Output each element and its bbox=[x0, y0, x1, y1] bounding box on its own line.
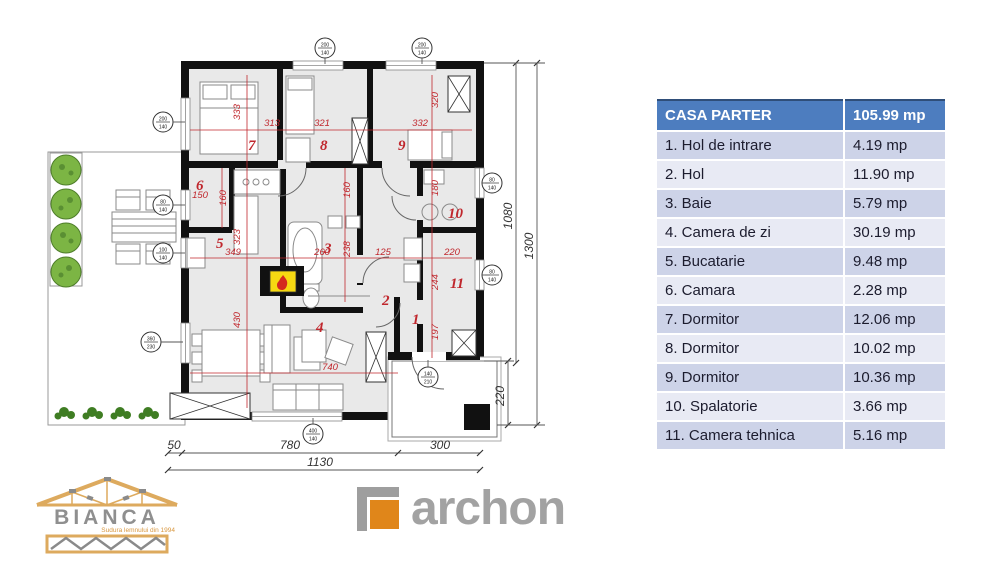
room-number: 9 bbox=[398, 138, 406, 154]
roof-truss-icon bbox=[37, 477, 177, 505]
tag-top: 80 bbox=[489, 270, 495, 276]
outer-dimensions-bottom: 50 780 300 1130 bbox=[165, 438, 483, 473]
window-tag: 140210 bbox=[418, 367, 438, 387]
dim-label: 244 bbox=[430, 274, 441, 291]
window-tag: 200140 bbox=[412, 38, 432, 58]
svg-text:50: 50 bbox=[167, 438, 181, 452]
tag-top: 200 bbox=[418, 43, 427, 49]
tag-top: 200 bbox=[159, 117, 168, 123]
table-row: 3. Baie 5.79 mp bbox=[657, 190, 945, 217]
room-area: 9.48 mp bbox=[845, 248, 945, 275]
table-header-row: CASA PARTER 105.99 mp bbox=[657, 99, 945, 130]
room-number: 1 bbox=[412, 312, 420, 328]
table-row: 4. Camera de zi 30.19 mp bbox=[657, 219, 945, 246]
room-number: 8 bbox=[320, 138, 328, 154]
tag-bottom: 140 bbox=[418, 51, 427, 57]
tag-top: 360 bbox=[147, 337, 156, 343]
page: { "table": { "header": { "label": "CASA … bbox=[0, 0, 1000, 562]
dim-label: 323 bbox=[232, 228, 243, 245]
tag-bottom: 140 bbox=[488, 278, 497, 284]
room-label: 9. Dormitor bbox=[657, 364, 843, 391]
svg-text:1080: 1080 bbox=[501, 202, 515, 229]
dim-label: 333 bbox=[232, 103, 243, 120]
tag-bottom: 140 bbox=[309, 437, 318, 443]
table-row: 11. Camera tehnica 5.16 mp bbox=[657, 422, 945, 449]
room-number: 10 bbox=[448, 206, 464, 222]
bianca-tagline: Sudura lemnului din 1994 bbox=[101, 527, 175, 534]
dim-label: 321 bbox=[314, 118, 330, 129]
room-number: 2 bbox=[381, 293, 390, 309]
tag-top: 80 bbox=[160, 200, 166, 206]
entrance-porch bbox=[388, 352, 501, 441]
tag-top: 140 bbox=[424, 372, 433, 378]
svg-text:300: 300 bbox=[430, 438, 450, 452]
dim-label: 180 bbox=[430, 179, 441, 196]
tag-bottom: 140 bbox=[321, 51, 330, 57]
table-row: 9. Dormitor 10.36 mp bbox=[657, 364, 945, 391]
window-tag: 200140 bbox=[153, 112, 173, 132]
dim-label: 430 bbox=[232, 311, 243, 328]
room-label: 10. Spalatorie bbox=[657, 393, 843, 420]
room-number: 5 bbox=[216, 236, 224, 252]
dim-label: 150 bbox=[192, 190, 209, 201]
room-label: 6. Camara bbox=[657, 277, 843, 304]
tag-top: 100 bbox=[159, 248, 168, 254]
room-number: 11 bbox=[450, 276, 464, 292]
dim-label: 313 bbox=[264, 118, 281, 129]
table-row: 7. Dormitor 12.06 mp bbox=[657, 306, 945, 333]
archon-mark-icon bbox=[357, 487, 401, 533]
dim-label: 160 bbox=[218, 189, 229, 206]
dim-label: 238 bbox=[342, 240, 353, 258]
window-tag: 80140 bbox=[153, 195, 173, 215]
archon-logo: archon bbox=[357, 487, 565, 533]
doormat bbox=[464, 404, 490, 430]
tag-bottom: 140 bbox=[159, 208, 168, 214]
tag-bottom: 140 bbox=[159, 125, 168, 131]
room-area: 12.06 mp bbox=[845, 306, 945, 333]
tag-top: 80 bbox=[489, 178, 495, 184]
room-number: 4 bbox=[315, 320, 324, 336]
bianca-logo: BIANCA Sudura lemnului din 1994 bbox=[25, 474, 195, 558]
dim-label: 320 bbox=[430, 91, 441, 108]
floor-truss-icon bbox=[47, 536, 167, 552]
dim-label: 260 bbox=[313, 247, 331, 258]
room-area: 5.79 mp bbox=[845, 190, 945, 217]
room-label: 8. Dormitor bbox=[657, 335, 843, 362]
room-label: 3. Baie bbox=[657, 190, 843, 217]
room-label: 5. Bucatarie bbox=[657, 248, 843, 275]
room-area: 2.28 mp bbox=[845, 277, 945, 304]
archon-wordmark: archon bbox=[411, 487, 565, 531]
room-label: 4. Camera de zi bbox=[657, 219, 843, 246]
svg-text:780: 780 bbox=[280, 438, 300, 452]
table-row: 5. Bucatarie 9.48 mp bbox=[657, 248, 945, 275]
room-label: 1. Hol de intrare bbox=[657, 132, 843, 159]
room-area: 5.16 mp bbox=[845, 422, 945, 449]
dim-label: 740 bbox=[322, 362, 339, 373]
svg-text:1130: 1130 bbox=[307, 455, 333, 469]
table-row: 2. Hol 11.90 mp bbox=[657, 161, 945, 188]
room-areas-table: CASA PARTER 105.99 mp 1. Hol de intrare … bbox=[655, 97, 947, 451]
window-tag: 200140 bbox=[315, 38, 335, 58]
room-area: 10.02 mp bbox=[845, 335, 945, 362]
dim-label: 197 bbox=[430, 323, 441, 340]
tag-bottom: 140 bbox=[488, 186, 497, 192]
tag-bottom: 210 bbox=[424, 380, 433, 386]
room-area: 10.36 mp bbox=[845, 364, 945, 391]
window-tag: 400140 bbox=[303, 424, 323, 444]
dim-label: 332 bbox=[412, 118, 429, 129]
table-total-area: 105.99 mp bbox=[845, 99, 945, 130]
room-area: 30.19 mp bbox=[845, 219, 945, 246]
table-row: 6. Camara 2.28 mp bbox=[657, 277, 945, 304]
terrace bbox=[48, 152, 185, 425]
tag-top: 200 bbox=[321, 43, 330, 49]
dim-label: 125 bbox=[375, 247, 392, 258]
fireplace-icon bbox=[260, 266, 304, 296]
floor-plan: 7896531011214 31332133233332015016016018… bbox=[0, 0, 650, 480]
bianca-wordmark: BIANCA bbox=[54, 506, 160, 529]
dim-label: 349 bbox=[225, 247, 242, 258]
tag-bottom: 230 bbox=[147, 345, 156, 351]
dim-label: 160 bbox=[342, 181, 353, 198]
room-label: 2. Hol bbox=[657, 161, 843, 188]
tag-top: 400 bbox=[309, 429, 318, 435]
tag-bottom: 140 bbox=[159, 256, 168, 262]
table-title: CASA PARTER bbox=[657, 99, 843, 130]
room-area: 4.19 mp bbox=[845, 132, 945, 159]
room-area: 3.66 mp bbox=[845, 393, 945, 420]
svg-text:220: 220 bbox=[493, 386, 507, 407]
room-number: 7 bbox=[248, 138, 256, 154]
dim-label: 220 bbox=[443, 247, 461, 258]
table-row: 10. Spalatorie 3.66 mp bbox=[657, 393, 945, 420]
table-row: 1. Hol de intrare 4.19 mp bbox=[657, 132, 945, 159]
room-label: 11. Camera tehnica bbox=[657, 422, 843, 449]
window-tag: 360230 bbox=[141, 332, 161, 352]
svg-text:1300: 1300 bbox=[522, 232, 536, 259]
room-area: 11.90 mp bbox=[845, 161, 945, 188]
room-label: 7. Dormitor bbox=[657, 306, 843, 333]
window-tag: 100140 bbox=[153, 243, 173, 263]
table-row: 8. Dormitor 10.02 mp bbox=[657, 335, 945, 362]
